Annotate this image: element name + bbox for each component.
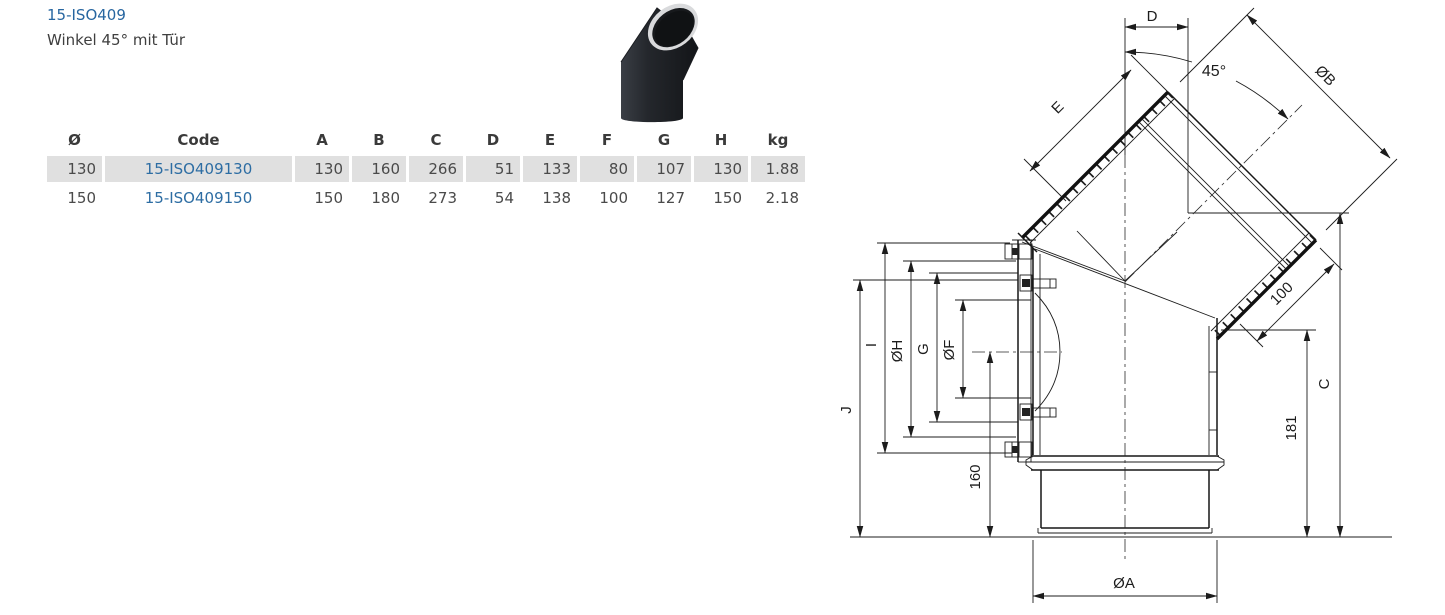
cell-f: 80 xyxy=(580,156,634,182)
cell-h: 130 xyxy=(694,156,748,182)
dim-label-dia-a: ØA xyxy=(1113,575,1135,592)
product-title: Winkel 45° mit Tür xyxy=(47,31,185,49)
dim-label-45: 45° xyxy=(1202,63,1226,80)
dim-label-dia-b: ØB xyxy=(1312,62,1339,89)
cell-b: 180 xyxy=(352,185,406,211)
product-variant-link[interactable]: 15-ISO409130 xyxy=(145,160,253,178)
cell-g: 107 xyxy=(637,156,691,182)
cell-e: 138 xyxy=(523,185,577,211)
dim-label-dia-h: ØH xyxy=(889,340,906,363)
cell-f: 100 xyxy=(580,185,634,211)
col-g: G xyxy=(637,127,691,153)
cell-kg: 2.18 xyxy=(751,185,805,211)
col-a: A xyxy=(295,127,349,153)
col-b: B xyxy=(352,127,406,153)
col-f: F xyxy=(580,127,634,153)
dimension-table: Ø Code A B C D E F G H kg 130 15-ISO4091… xyxy=(44,124,808,214)
product-code-link[interactable]: 15-ISO409 xyxy=(47,6,185,24)
cell-c: 273 xyxy=(409,185,463,211)
col-kg: kg xyxy=(751,127,805,153)
col-diameter: Ø xyxy=(47,127,102,153)
col-h: H xyxy=(694,127,748,153)
cell-code: 15-ISO409130 xyxy=(105,156,292,182)
col-code: Code xyxy=(105,127,292,153)
cell-b: 160 xyxy=(352,156,406,182)
elbow-outline xyxy=(1012,92,1316,533)
dim-label-e: E xyxy=(1048,98,1067,117)
dim-label-181: 181 xyxy=(1283,415,1300,440)
table-header-row: Ø Code A B C D E F G H kg xyxy=(47,127,805,153)
page: 15-ISO409 Winkel 45° mit Tür Ø Code A B xyxy=(0,0,1445,615)
product-variant-link[interactable]: 15-ISO409150 xyxy=(145,189,253,207)
cell-d: 54 xyxy=(466,185,520,211)
dim-label-d: D xyxy=(1147,8,1158,25)
door-clamp xyxy=(1020,404,1056,420)
cell-kg: 1.88 xyxy=(751,156,805,182)
cell-diameter: 150 xyxy=(47,185,102,211)
dim-label-g: G xyxy=(915,343,932,355)
header: 15-ISO409 Winkel 45° mit Tür xyxy=(47,6,185,49)
cell-a: 150 xyxy=(295,185,349,211)
dimension-lines: D 45° ØB E J I xyxy=(838,8,1397,603)
cell-c: 266 xyxy=(409,156,463,182)
cell-d: 51 xyxy=(466,156,520,182)
technical-drawing: D 45° ØB E J I xyxy=(825,0,1445,615)
cell-diameter: 130 xyxy=(47,156,102,182)
product-photo xyxy=(593,0,721,130)
col-c: C xyxy=(409,127,463,153)
dim-label-160: 160 xyxy=(967,464,984,489)
cell-code: 15-ISO409150 xyxy=(105,185,292,211)
cell-h: 150 xyxy=(694,185,748,211)
cell-e: 133 xyxy=(523,156,577,182)
cell-g: 127 xyxy=(637,185,691,211)
door-clamp xyxy=(1020,275,1056,291)
dim-label-i: I xyxy=(863,343,880,347)
dim-label-dia-f: ØF xyxy=(941,340,958,361)
dim-label-c: C xyxy=(1316,378,1333,389)
table-row: 130 15-ISO409130 130 160 266 51 133 80 1… xyxy=(47,156,805,182)
table-row: 150 15-ISO409150 150 180 273 54 138 100 … xyxy=(47,185,805,211)
col-d: D xyxy=(466,127,520,153)
dim-label-j: J xyxy=(838,406,855,414)
col-e: E xyxy=(523,127,577,153)
cell-a: 130 xyxy=(295,156,349,182)
